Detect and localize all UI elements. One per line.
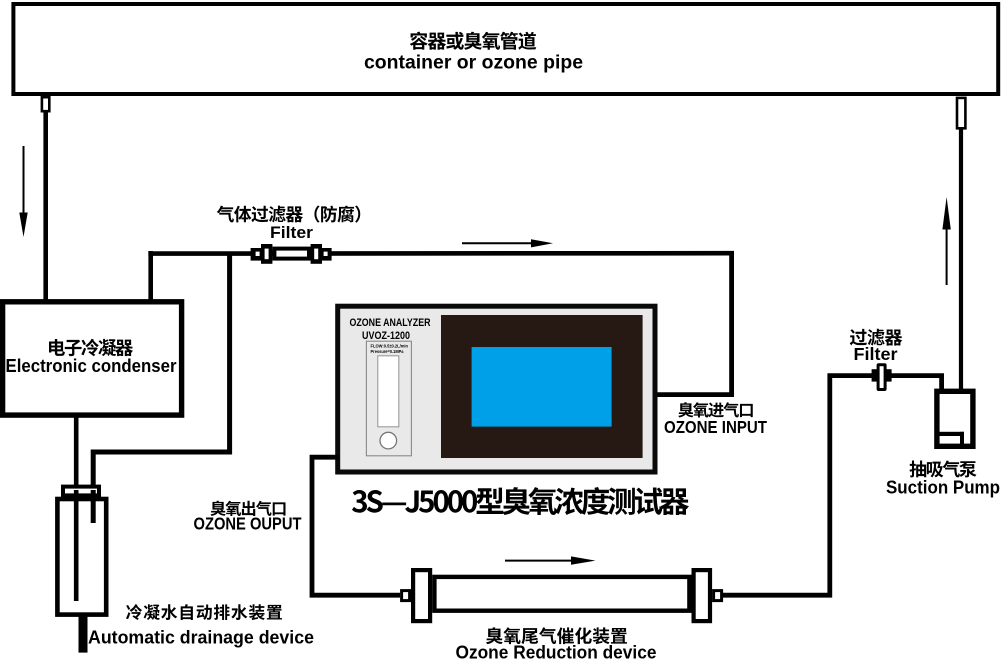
svg-text:UVOZ-1200: UVOZ-1200 <box>362 330 410 342</box>
svg-text:Filter: Filter <box>854 344 898 364</box>
svg-text:OZONE OUPUT: OZONE OUPUT <box>194 514 302 534</box>
svg-text:Suction Pump: Suction Pump <box>886 478 1000 498</box>
svg-text:OZONE ANALYZER: OZONE ANALYZER <box>350 317 431 329</box>
svg-text:Automatic drainage device: Automatic drainage device <box>88 627 314 648</box>
svg-text:Electronic condenser: Electronic condenser <box>6 355 177 376</box>
svg-text:FLOW:0.5±0.2L/min: FLOW:0.5±0.2L/min <box>371 344 409 349</box>
svg-text:Ozone Reduction device: Ozone Reduction device <box>456 643 657 659</box>
svg-text:container or ozone pipe: container or ozone pipe <box>364 51 583 73</box>
svg-text:Pressure=0.1MPa: Pressure=0.1MPa <box>371 349 404 354</box>
svg-text:Filter: Filter <box>270 223 313 242</box>
svg-text:OZONE INPUT: OZONE INPUT <box>664 417 767 437</box>
